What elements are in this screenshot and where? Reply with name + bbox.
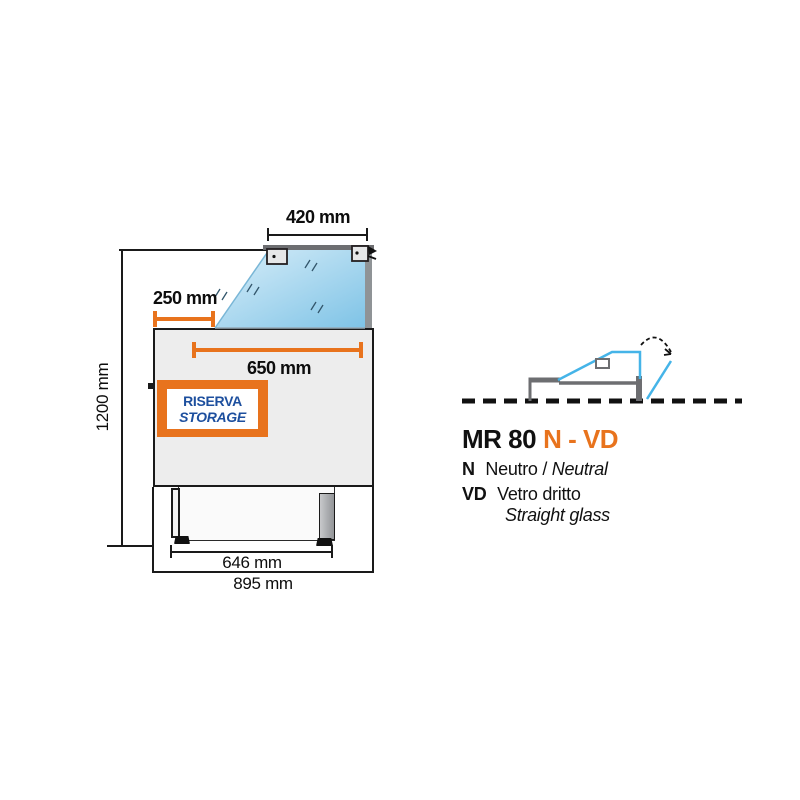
side-schematic — [455, 325, 755, 410]
dim-label-420: 420 mm — [272, 207, 364, 228]
dim-label-650: 650 mm — [237, 358, 321, 379]
badge-line2: STORAGE — [179, 409, 246, 425]
spec-sheet-canvas: 420 mm 1200 mm — [0, 0, 800, 800]
extension-895-right — [372, 487, 374, 573]
glass-panel — [205, 240, 380, 335]
legend-en-n: Neutral — [552, 459, 608, 479]
foot-left — [174, 536, 190, 544]
riserva-storage-badge: RISERVA STORAGE — [157, 380, 268, 437]
open-arrow-icon — [641, 337, 671, 355]
dim-line-895 — [152, 571, 374, 573]
legend-code-n: N — [462, 459, 475, 479]
schematic-hinge-icon — [596, 359, 609, 368]
counter-profile — [529, 376, 643, 401]
dim-bar-250 — [153, 311, 215, 327]
legend-row-vd: VD Vetro dritto Straight glass — [462, 484, 722, 526]
legend-code-vd: VD — [462, 484, 486, 504]
model-suffix: N - VD — [543, 424, 618, 454]
door-hinge-mark — [148, 383, 154, 389]
badge-line1: RISERVA — [183, 393, 242, 409]
legend-it-n: Neutro / — [485, 459, 547, 479]
model-title: MR 80N - VD — [462, 424, 722, 455]
dim-label-250: 250 mm — [146, 288, 224, 309]
dim-line-1200 — [121, 249, 123, 547]
extension-line-bottom — [107, 545, 153, 547]
dim-bar-650 — [192, 342, 363, 358]
glass-pane — [215, 250, 365, 328]
dim-label-895: 895 mm — [221, 574, 305, 594]
extension-895-left — [152, 487, 154, 573]
hinge-left-icon — [267, 249, 287, 264]
glass-open-line — [647, 361, 671, 399]
legend: MR 80N - VD N Neutro / Neutral VD Vetro … — [462, 424, 722, 526]
dim-label-646: 646 mm — [210, 553, 294, 573]
legend-en-vd: Straight glass — [505, 505, 722, 526]
legend-it-vd: Vetro dritto — [497, 484, 580, 504]
leg-right — [319, 493, 335, 540]
legend-row-n: N Neutro / Neutral — [462, 459, 722, 480]
plinth — [178, 487, 335, 541]
model-prefix: MR 80 — [462, 424, 536, 454]
badge-inner: RISERVA STORAGE — [167, 389, 258, 429]
leg-left — [171, 488, 180, 538]
dim-label-1200: 1200 mm — [93, 351, 113, 443]
